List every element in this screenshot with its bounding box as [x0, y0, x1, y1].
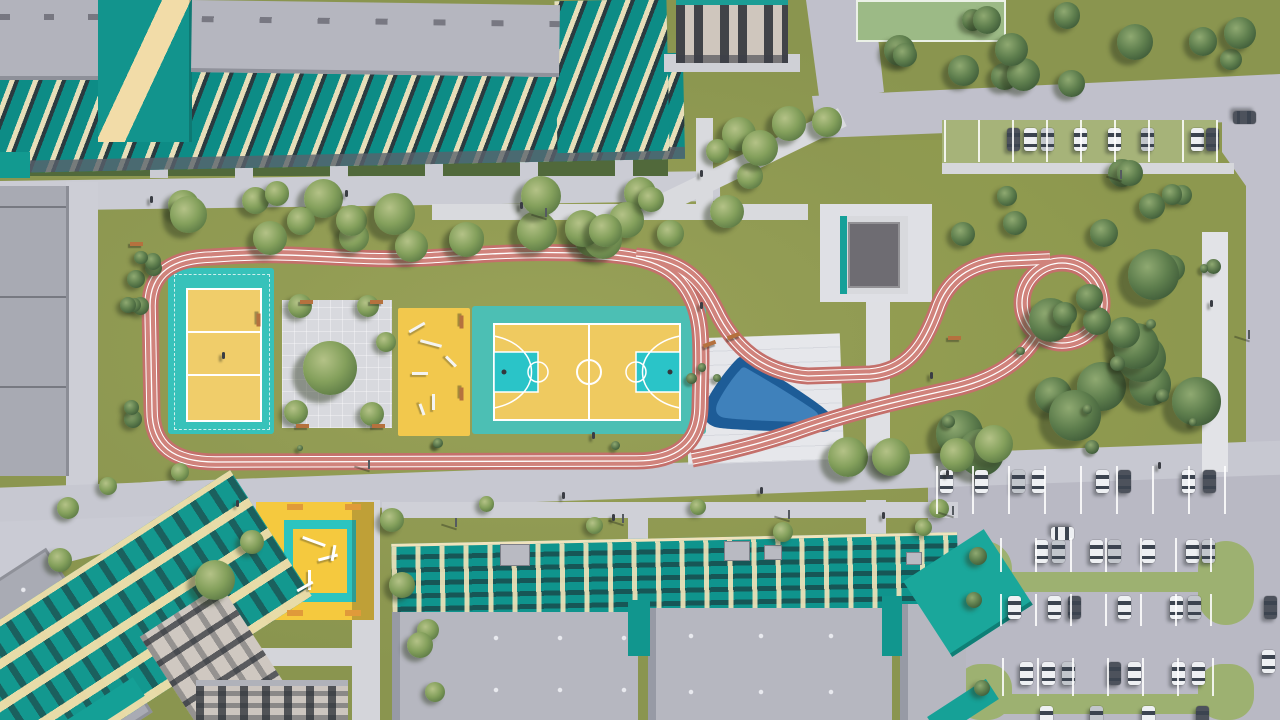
tree	[479, 496, 494, 511]
bench	[703, 340, 717, 348]
parking-stall-line	[1012, 120, 1014, 162]
parking-stall-line	[1107, 658, 1109, 696]
tree	[1003, 211, 1027, 235]
bush	[1206, 259, 1221, 274]
tree	[1128, 249, 1179, 300]
tree	[1139, 193, 1165, 219]
pedestrian	[562, 492, 565, 499]
bench	[727, 332, 741, 340]
fitness-equipment	[408, 322, 425, 334]
tree	[395, 230, 427, 262]
tree	[360, 402, 384, 426]
scene-items	[0, 0, 1280, 720]
parking-stall-line	[1140, 538, 1142, 572]
bench	[296, 424, 309, 428]
car	[1048, 596, 1061, 619]
car	[1202, 540, 1215, 563]
parking-stall-line	[1000, 594, 1002, 626]
play-equipment	[302, 536, 326, 547]
bush	[1200, 264, 1209, 273]
bush	[1083, 404, 1092, 413]
parking-stall-line	[1035, 538, 1037, 572]
tree	[57, 497, 79, 519]
bench	[370, 300, 383, 304]
car	[1142, 706, 1155, 720]
tree	[975, 425, 1014, 464]
car	[1090, 706, 1103, 720]
tree	[134, 251, 148, 265]
pedestrian	[592, 432, 595, 439]
playground-bench	[287, 610, 303, 616]
bench	[948, 336, 961, 340]
parking-stall-line	[1140, 594, 1142, 626]
car	[1188, 596, 1201, 619]
parking-stall-line	[1224, 466, 1226, 514]
car	[1142, 540, 1155, 563]
car	[1040, 706, 1053, 720]
parking-stall-line	[1002, 658, 1004, 696]
playground-bench	[345, 504, 361, 510]
parking-stall-line	[1080, 466, 1082, 514]
car	[1024, 128, 1037, 151]
tree	[1076, 284, 1103, 311]
car	[1186, 540, 1199, 563]
parking-stall-line	[972, 466, 974, 514]
parking-stall-line	[1008, 466, 1010, 514]
tree	[253, 221, 287, 255]
pedestrian	[930, 372, 933, 379]
parking-stall-line	[1210, 594, 1212, 626]
bush	[1085, 440, 1099, 454]
tree	[1058, 70, 1085, 97]
tree	[1172, 377, 1221, 426]
tree	[638, 187, 663, 212]
car	[1008, 596, 1021, 619]
fitness-equipment	[412, 372, 428, 375]
tree	[1054, 2, 1080, 28]
car	[1090, 540, 1103, 563]
parking-stall-line	[1212, 658, 1214, 696]
light-pole	[455, 518, 457, 527]
parking-stall-line	[1177, 658, 1179, 696]
pedestrian	[700, 302, 703, 309]
tree	[915, 519, 932, 536]
bench	[460, 388, 464, 401]
tree	[966, 592, 982, 608]
tree	[1090, 219, 1118, 247]
bush	[611, 441, 620, 450]
tree	[586, 517, 603, 534]
parking-stall-line	[1142, 658, 1144, 696]
tree	[288, 294, 312, 318]
tree	[690, 499, 706, 515]
bench	[257, 314, 261, 327]
bench	[130, 242, 143, 246]
car	[1108, 662, 1121, 685]
tree	[997, 186, 1016, 205]
parking-stall-line	[1105, 538, 1107, 572]
tree	[1049, 390, 1101, 442]
parking-stall-line	[1210, 538, 1212, 572]
tree	[1162, 184, 1183, 205]
fitness-equipment	[420, 339, 442, 348]
parking-stall-line	[1070, 538, 1072, 572]
car	[1262, 650, 1275, 673]
car	[1052, 540, 1065, 563]
parking-stall-line	[1037, 658, 1039, 696]
playground-bench	[345, 610, 361, 616]
parking-stall-line	[978, 120, 980, 162]
tree	[357, 295, 379, 317]
car	[1264, 596, 1277, 619]
car	[1203, 470, 1216, 493]
light-pole	[622, 514, 624, 523]
tree	[812, 107, 842, 137]
tree	[284, 400, 308, 424]
tree	[706, 139, 730, 163]
tree	[376, 332, 396, 352]
tree	[1189, 27, 1217, 55]
bench	[300, 300, 313, 304]
parking-stall-line	[1175, 594, 1177, 626]
tree	[1220, 49, 1242, 71]
bush	[713, 374, 721, 382]
bush	[1146, 319, 1156, 329]
tree	[589, 214, 622, 247]
car	[1118, 596, 1131, 619]
light-pole	[788, 510, 790, 519]
tree	[1053, 302, 1077, 326]
parking-stall-line	[1080, 120, 1082, 162]
parking-stall-line	[1188, 466, 1190, 514]
car	[1042, 662, 1055, 685]
pedestrian	[882, 512, 885, 519]
bush	[686, 373, 697, 384]
car	[1012, 470, 1025, 493]
fitness-equipment	[432, 394, 435, 410]
bush	[297, 445, 303, 451]
car	[1233, 111, 1256, 124]
tree	[773, 522, 793, 542]
tree	[772, 106, 807, 141]
car	[1191, 128, 1204, 151]
parking-stall-line	[944, 120, 946, 162]
car	[1192, 662, 1205, 685]
tree	[828, 437, 868, 477]
tree	[948, 55, 980, 87]
parking-stall-line	[1070, 594, 1072, 626]
pedestrian	[946, 470, 949, 477]
light-pole	[545, 208, 547, 217]
pedestrian	[345, 190, 348, 197]
car	[1108, 540, 1121, 563]
tree	[407, 632, 433, 658]
car	[1196, 706, 1209, 720]
tree	[951, 222, 975, 246]
light-pole	[952, 506, 954, 515]
aerial-render-canvas	[0, 0, 1280, 720]
bench	[372, 424, 385, 428]
parking-stall-line	[1175, 538, 1177, 572]
pedestrian	[222, 352, 225, 359]
parking-stall-line	[1116, 466, 1118, 514]
bench	[460, 316, 464, 329]
tree	[449, 222, 484, 257]
tree	[425, 682, 445, 702]
tree	[969, 547, 987, 565]
car	[1096, 470, 1109, 493]
car	[1118, 470, 1131, 493]
parking-stall-line	[1046, 120, 1048, 162]
tree	[521, 176, 561, 216]
tree	[303, 341, 357, 395]
pedestrian	[236, 500, 239, 507]
bush	[698, 363, 706, 371]
tree	[1108, 317, 1139, 348]
tree	[99, 477, 117, 495]
tree	[1224, 17, 1256, 49]
tree	[389, 572, 415, 598]
pedestrian	[520, 202, 523, 209]
tree	[710, 195, 744, 229]
pedestrian	[760, 487, 763, 494]
tree	[127, 270, 145, 288]
tree	[737, 163, 763, 189]
tree	[48, 548, 72, 572]
tree	[170, 196, 207, 233]
tree	[742, 130, 778, 166]
tree	[1083, 307, 1111, 335]
tree	[973, 6, 1001, 34]
parking-stall-line	[1182, 120, 1184, 162]
parking-stall-line	[1152, 466, 1154, 514]
parking-stall-line	[1035, 594, 1037, 626]
parking-stall-line	[1072, 658, 1074, 696]
pedestrian	[1158, 462, 1161, 469]
tree	[336, 205, 367, 236]
pedestrian	[1210, 300, 1213, 307]
tree	[240, 530, 264, 554]
bush	[942, 415, 955, 428]
tree	[893, 43, 917, 67]
parking-stall-line	[1148, 120, 1150, 162]
bush	[1156, 389, 1169, 402]
parking-stall-line	[1105, 594, 1107, 626]
playground-bench	[287, 504, 303, 510]
tree	[872, 438, 910, 476]
parking-stall-line	[1216, 120, 1218, 162]
tree	[380, 508, 404, 532]
light-pole	[1120, 170, 1122, 179]
parking-stall-line	[1044, 466, 1046, 514]
car	[975, 470, 988, 493]
pedestrian	[700, 170, 703, 177]
pedestrian	[150, 196, 153, 203]
fitness-equipment	[445, 355, 457, 367]
bush	[1016, 347, 1025, 356]
parking-stall-line	[1000, 538, 1002, 572]
car	[1128, 662, 1141, 685]
car	[1020, 662, 1033, 685]
light-pole	[1248, 330, 1250, 339]
tree	[287, 207, 315, 235]
play-equipment	[318, 553, 338, 561]
tree	[171, 463, 189, 481]
tree	[657, 220, 684, 247]
parking-stall-line	[1114, 120, 1116, 162]
tree	[265, 181, 290, 206]
tree	[1117, 24, 1153, 60]
parking-stall-line	[936, 466, 938, 514]
tree	[974, 680, 990, 696]
tree	[195, 560, 235, 600]
light-pole	[368, 460, 370, 469]
bush	[433, 438, 443, 448]
tree	[374, 193, 415, 234]
fitness-equipment	[419, 403, 426, 415]
